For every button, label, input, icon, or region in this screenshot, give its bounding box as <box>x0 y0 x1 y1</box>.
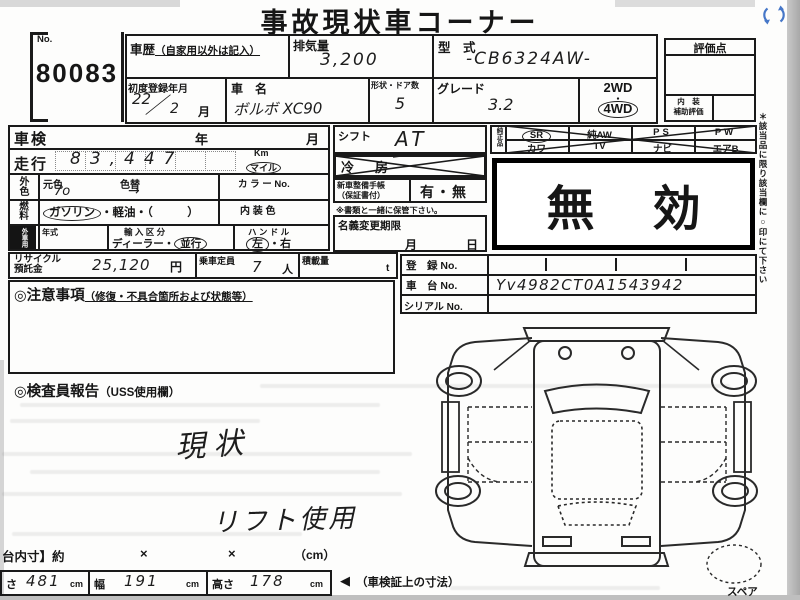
import-side-label: 外車用 <box>10 226 36 249</box>
inner-dimension-label: 台内寸】約 <box>2 546 65 565</box>
height-value: 178 <box>250 572 285 590</box>
car-name-value: ボルボ XC90 <box>233 97 323 120</box>
mileage-value: 83,447 <box>70 149 183 169</box>
chassis-no-label: 車 台 No. <box>406 278 457 293</box>
first-registration-unit: 月 <box>198 103 210 120</box>
grade-label: グレード <box>437 80 485 97</box>
circle-instruction-note: ＊該当品に限り該当欄に○印にて下さい <box>757 112 769 312</box>
lot-number: 80083 <box>34 58 120 89</box>
capacity-unit: 人 <box>282 261 293 277</box>
recycle-deposit-value: 25,120 <box>92 256 151 274</box>
no-label: No. <box>37 34 52 45</box>
no-box-bracket-bottom <box>30 119 48 122</box>
shift-value: AT <box>395 127 427 151</box>
spare-tire-label: スペア <box>727 584 758 599</box>
drive-4wd: 4WD <box>578 100 658 118</box>
capacity-label: 乗車定員 <box>199 254 235 267</box>
scan-edge-top-right <box>615 0 755 7</box>
dimension-unit: （cm） <box>294 546 335 563</box>
transfer-month-label: 月 <box>405 236 417 253</box>
model-code-value: -CB6324AW- <box>466 49 592 69</box>
grade-value: 3.2 <box>488 95 513 114</box>
mileage-km-label: Km <box>254 148 269 158</box>
dimension-x2: × <box>228 546 236 561</box>
capacity-value: 7 <box>252 258 262 276</box>
history-label: 車歴（自家用以外は記入） <box>130 39 260 59</box>
handwritten-note-current-condition: 現状 <box>174 417 253 466</box>
registration-no-label: 登 録 No. <box>406 258 457 273</box>
length-label: さ <box>6 576 17 592</box>
repaint-value: → <box>128 183 140 199</box>
shape-doors-label: 形状・ドア数 <box>371 80 419 91</box>
load-unit: t <box>386 263 389 274</box>
width-label: 幅 <box>94 576 105 592</box>
invalid-stamp-box: 無 効 <box>492 158 755 250</box>
length-value: 481 <box>26 572 61 590</box>
load-label: 積載量 <box>302 254 329 267</box>
chassis-no-value: Yv4982CT0A1543942 <box>496 276 684 294</box>
auction-sheet: 事故現状車コーナー No. 80083 車歴（自家用以外は記入） 排気量 3,2… <box>0 0 800 600</box>
color-no-label: カ ラ ー No. <box>238 176 290 190</box>
dimension-arrow-note: （車検証上の寸法） <box>356 574 460 590</box>
rating-title: 評価点 <box>664 40 756 56</box>
transfer-deadline-label: 名義変更期限 <box>338 218 401 233</box>
maintenance-book-label: 新車整備手帳（保証書付） <box>337 181 385 201</box>
import-class-value: ディーラー・並行 <box>112 234 207 252</box>
shaken-month-label: 月 <box>306 129 319 148</box>
shaken-label: 車検 <box>14 128 48 149</box>
displacement-value: 3,200 <box>320 50 379 70</box>
aircon-cross <box>333 154 487 178</box>
no-box-bracket-right <box>121 32 124 122</box>
dimension-x1: × <box>140 546 148 561</box>
width-value: 191 <box>124 572 159 590</box>
maintenance-book-value: 有・無 <box>420 182 468 202</box>
height-label: 高さ <box>212 576 234 592</box>
rotate-icon[interactable] <box>762 3 786 27</box>
caution-header: ◎注意事項（修復・不具合箇所および状態等） <box>14 284 253 305</box>
scan-edge-top-left <box>0 0 180 7</box>
height-unit: cm <box>310 579 323 589</box>
first-registration-month: 2 <box>170 101 179 117</box>
recycle-deposit-unit: 円 <box>170 258 182 275</box>
base-color-value: 7o <box>54 184 70 199</box>
mileage-mile-label: マイル <box>246 158 281 176</box>
parts-cross <box>505 125 757 154</box>
length-unit: cm <box>70 579 83 589</box>
transfer-day-label: 日 <box>466 236 478 253</box>
shift-label: シフト <box>338 128 371 144</box>
mileage-label: 走行 <box>14 153 48 174</box>
inspector-header: ◎検査員報告（USS使用欄） <box>14 380 180 401</box>
interior-rating-label: 内 装補助評価 <box>665 97 712 117</box>
scan-edge-right <box>787 0 800 600</box>
fuel-value: ガソリン・軽油・（ ） <box>43 203 199 221</box>
car-name-label: 車 名 <box>231 80 267 97</box>
shaken-year-label: 年 <box>195 129 208 148</box>
interior-color-label: 内 装 色 <box>240 202 276 217</box>
invalid-char-2: 効 <box>653 169 701 239</box>
handle-value: 左・右 <box>246 234 291 252</box>
dimension-arrow-icon: ◀ <box>340 573 350 589</box>
first-registration-slash: ／ <box>145 88 167 120</box>
genuine-parts-side-label: 純正品 <box>493 127 503 152</box>
serial-no-label: シリアル No. <box>404 298 463 313</box>
width-unit: cm <box>186 579 199 589</box>
car-diagram-top-view <box>428 318 765 586</box>
shape-doors-value: 5 <box>372 94 428 113</box>
fuel-side-label: 燃料 <box>15 201 29 222</box>
recycle-deposit-label: リサイクル預託金 <box>14 255 61 276</box>
no-box-bracket-left <box>30 32 33 122</box>
model-year-label: 年式 <box>42 227 58 238</box>
exterior-color-side-label: 外色 <box>15 176 30 198</box>
invalid-char-1: 無 <box>546 169 594 239</box>
